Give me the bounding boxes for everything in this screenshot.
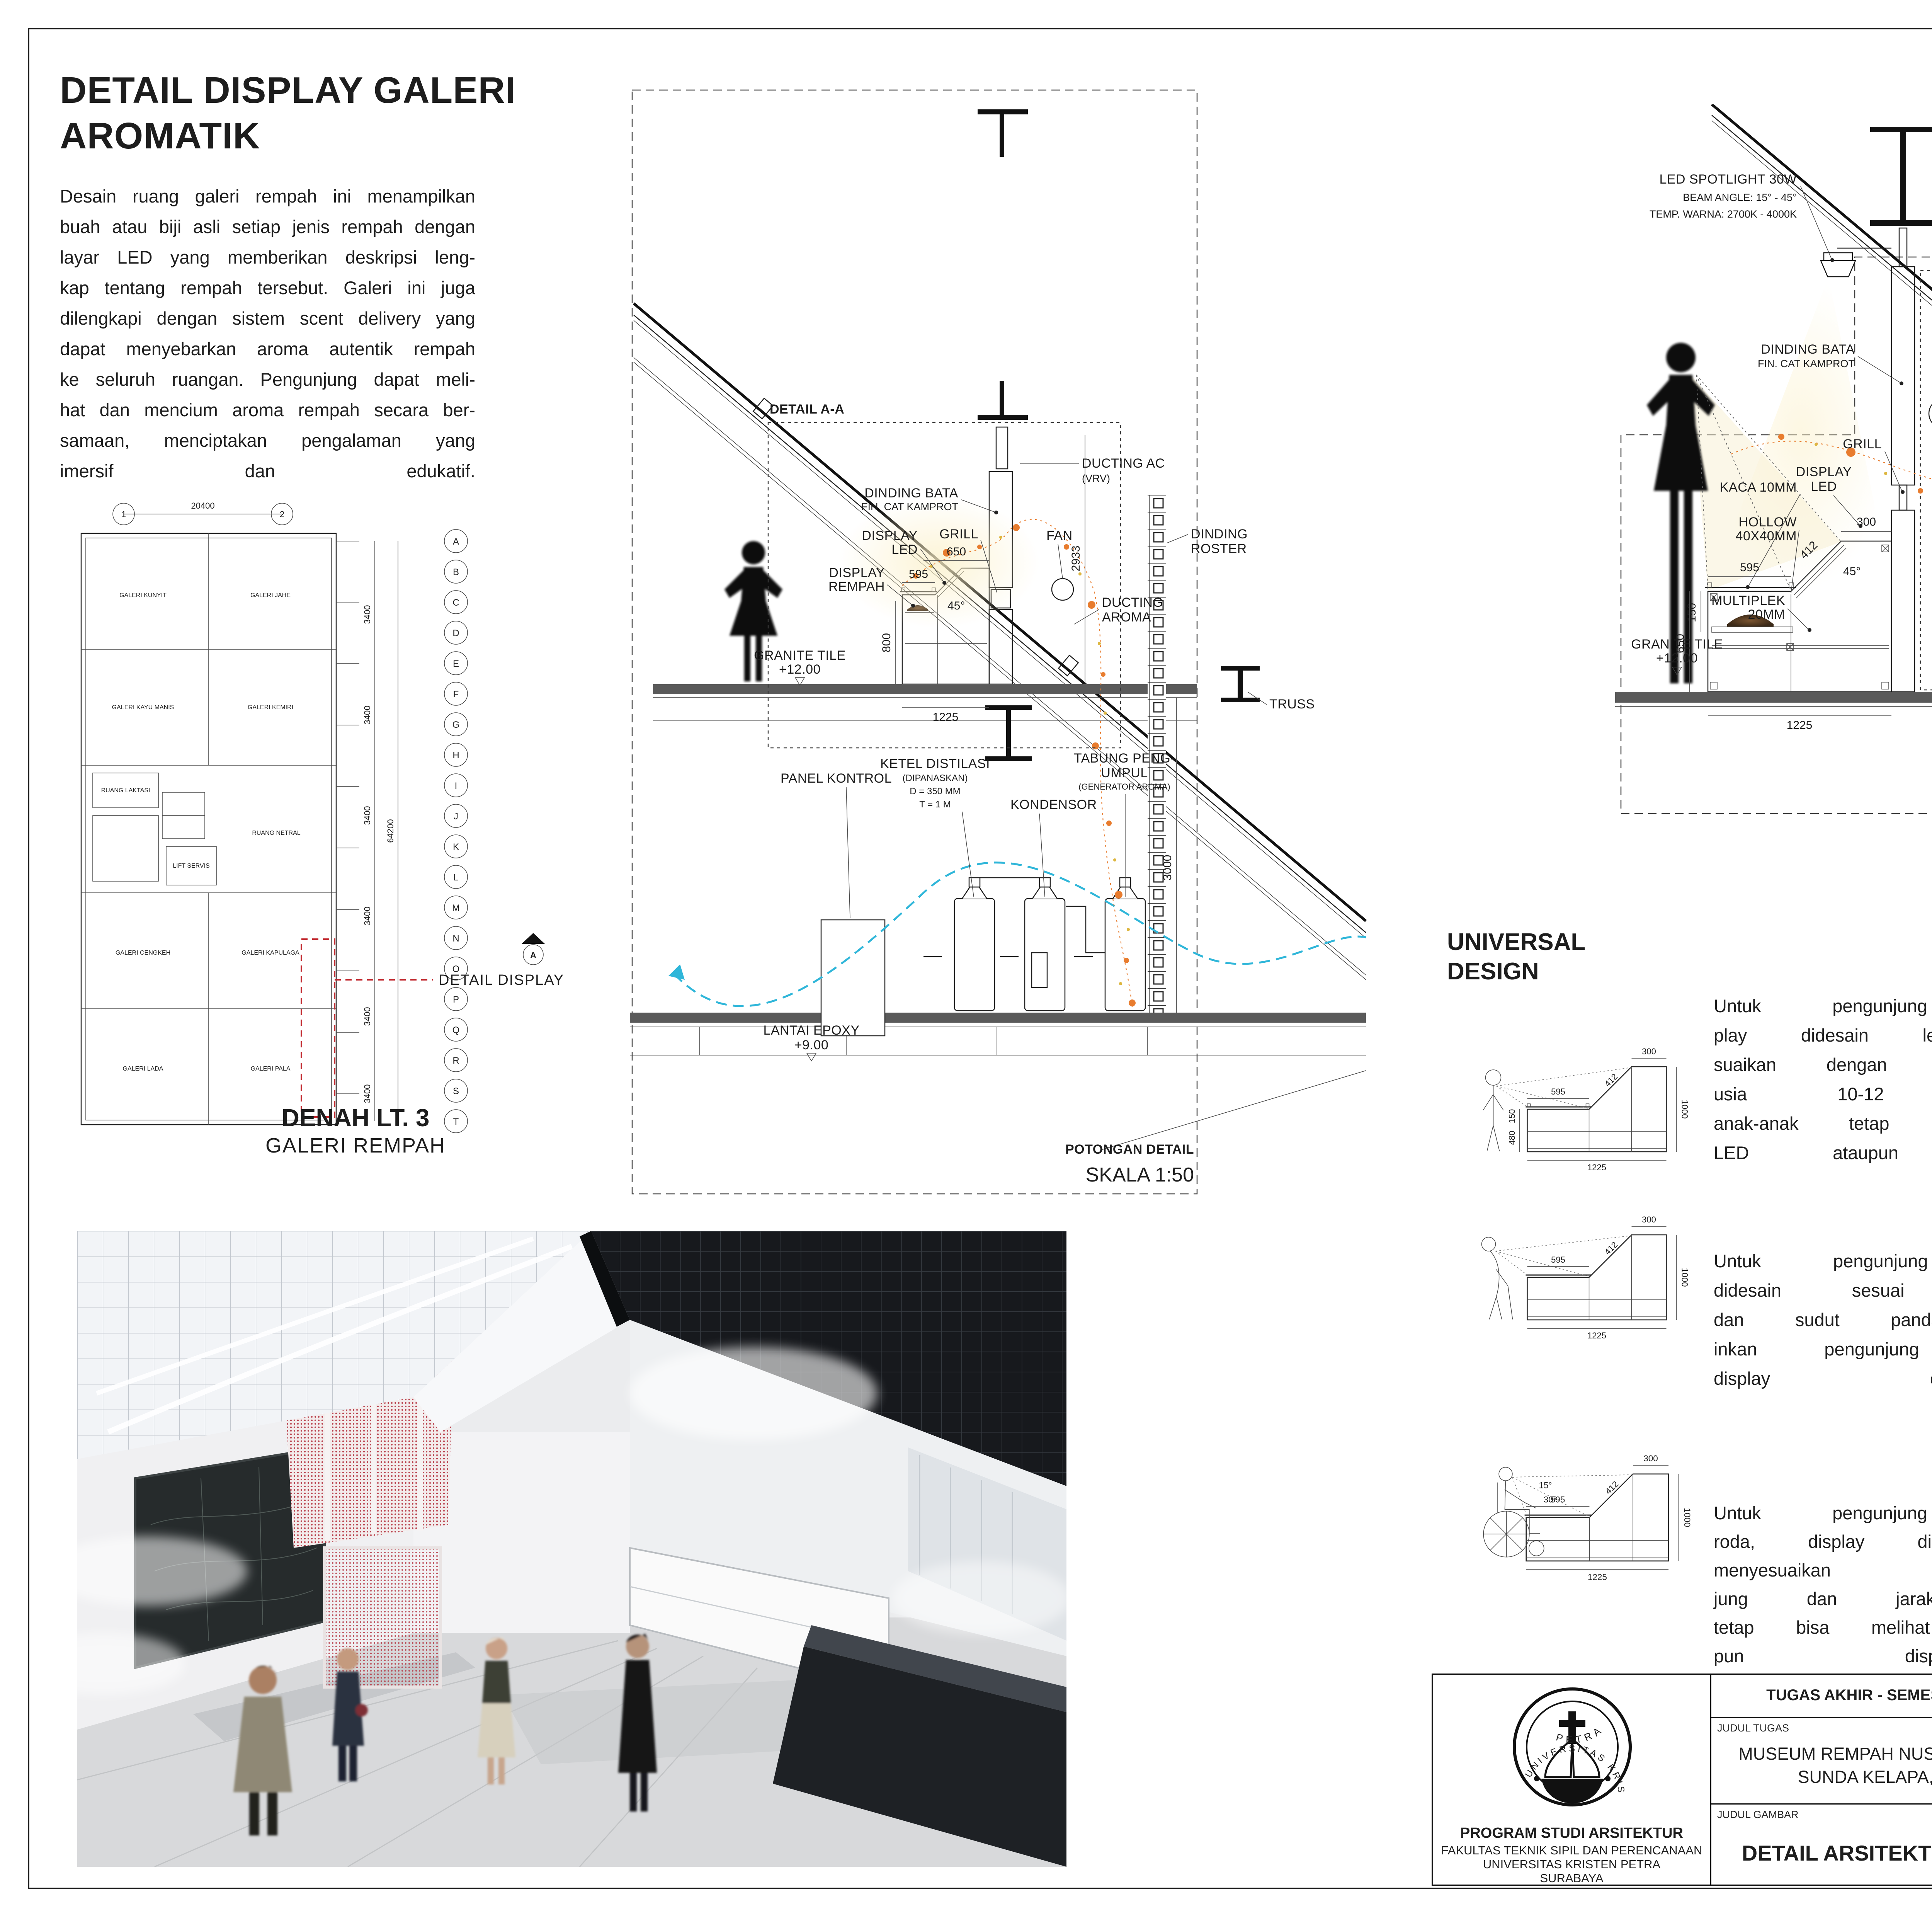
plan-room: LIFT SERVIS bbox=[173, 863, 209, 869]
svg-text:FAN: FAN bbox=[1046, 528, 1073, 543]
aroma-flow-line bbox=[674, 863, 1366, 1006]
potongan-drawing: DETAIL A-A 650 595 45° 800 1225 2933 300… bbox=[630, 87, 1368, 1208]
universal-paragraph-1: Untuk pengunjung anak-anak, dis- play di… bbox=[1714, 991, 1932, 1168]
plan-dim: 3400 bbox=[362, 907, 372, 926]
intro-paragraph: Desain ruang galeri rempah ini menampilk… bbox=[60, 181, 475, 486]
truss-symbol bbox=[1221, 666, 1260, 702]
p2-line: display dengan baik. bbox=[1714, 1364, 1932, 1393]
page-title-line2: AROMATIK bbox=[60, 113, 543, 159]
plan-room: GALERI KUNYIT bbox=[119, 592, 167, 599]
svg-text:T = 1 M: T = 1 M bbox=[919, 799, 951, 810]
dim: 1225 bbox=[1787, 719, 1813, 732]
plan-dim-overall: 64200 bbox=[386, 819, 395, 843]
plan-dim: 3400 bbox=[362, 1084, 372, 1103]
svg-text:REMPAH: REMPAH bbox=[828, 579, 885, 594]
floor-plan-drawing: 1 2 20400 GALERI KUNYIT GALERI JAHE GALE… bbox=[66, 499, 564, 1171]
intro-line: kap tentang rempah tersebut. Galeri ini … bbox=[60, 272, 475, 303]
svg-text:HOLLOW: HOLLOW bbox=[1739, 515, 1797, 529]
floor-plan: 1 2 20400 GALERI KUNYIT GALERI JAHE GALE… bbox=[66, 499, 564, 1171]
dim: 30° bbox=[1544, 1495, 1557, 1504]
grid-letter: I bbox=[455, 781, 457, 791]
section-marker-letter: A bbox=[530, 950, 536, 960]
potongan-detail: DETAIL A-A 650 595 45° 800 1225 2933 300… bbox=[630, 87, 1368, 1208]
petra-logo: UNIVERSITAS KRISTEN PETRA bbox=[1491, 1682, 1653, 1813]
svg-text:FIN. CAT KAMPROT: FIN. CAT KAMPROT bbox=[861, 501, 958, 512]
steel-column bbox=[978, 109, 1028, 469]
universal-fig-elderly: 595 300 412 1000 1225 bbox=[1447, 1204, 1700, 1343]
p3-line: roda, display didesain lebih pendek bbox=[1714, 1527, 1932, 1556]
dim: 480 bbox=[1507, 1131, 1517, 1145]
intro-line: layar LED yang memberikan deskripsi leng… bbox=[60, 242, 475, 272]
p2-line: dan sudut pandang yang memungk- bbox=[1714, 1305, 1932, 1335]
svg-text:FIN. CAT KAMPROT: FIN. CAT KAMPROT bbox=[1758, 358, 1855, 369]
svg-text:(DIPANASKAN): (DIPANASKAN) bbox=[903, 773, 968, 783]
svg-text:UMPUL: UMPUL bbox=[1101, 766, 1148, 780]
p1-line: play didesain lebih pendek menye- bbox=[1714, 1021, 1932, 1050]
grid-letter: R bbox=[452, 1056, 459, 1066]
svg-text:GRANITE TILE: GRANITE TILE bbox=[1631, 637, 1723, 652]
universitas: UNIVERSITAS KRISTEN PETRA bbox=[1433, 1857, 1710, 1871]
universal-fig-child: 595 300 412 150 480 1000 1225 bbox=[1447, 1036, 1700, 1175]
intro-line: imersif dan edukatif. bbox=[60, 456, 475, 486]
plan-room: GALERI PALA bbox=[251, 1066, 291, 1072]
p1-line: Untuk pengunjung anak-anak, dis- bbox=[1714, 991, 1932, 1021]
plan-room: RUANG LAKTASI bbox=[101, 787, 150, 794]
dim: 150 bbox=[1685, 603, 1698, 622]
svg-text:GRANITE TILE: GRANITE TILE bbox=[754, 648, 846, 663]
intro-line: hat dan mencium aroma rempah secara ber- bbox=[60, 395, 475, 425]
grid-letter: C bbox=[452, 598, 459, 608]
universal-h2: DESIGN bbox=[1447, 957, 1718, 986]
plan-title-text: DENAH LT. 3 bbox=[209, 1103, 502, 1132]
grid-letter: Q bbox=[452, 1025, 460, 1035]
interior-render bbox=[77, 1231, 1066, 1867]
grid-letter: B bbox=[453, 567, 459, 577]
svg-text:DISPLAY: DISPLAY bbox=[1796, 465, 1852, 479]
title-block: UNIVERSITAS KRISTEN PETRA PROGRAM STUDI … bbox=[1432, 1674, 1932, 1886]
intro-line: dapat menyebarkan aroma autentik rempah bbox=[60, 334, 475, 364]
dim: 1225 bbox=[1587, 1163, 1606, 1172]
universal-fig-wheelchair: 595 300 412 1000 1225 15° 30° bbox=[1447, 1411, 1700, 1581]
kota: SURABAYA bbox=[1433, 1871, 1710, 1885]
fan-symbol bbox=[1052, 579, 1073, 600]
plan-room: GALERI KAYU MANIS bbox=[112, 704, 174, 711]
p1-line: usia 10-12 tahun, sehingga bbox=[1714, 1079, 1932, 1109]
grid-letter: P bbox=[453, 994, 459, 1005]
judul-gambar: DETAIL ARSITEKTUR bbox=[1710, 1840, 1932, 1866]
svg-text:GRILL: GRILL bbox=[1843, 437, 1882, 451]
p1-line: anak-anak tetap bisa melihat display bbox=[1714, 1109, 1932, 1138]
svg-text:(GENERATOR AROMA): (GENERATOR AROMA) bbox=[1078, 782, 1170, 792]
p3-line: jung dan jarak pandangnya agar bbox=[1714, 1585, 1932, 1613]
svg-text:DISPLAY: DISPLAY bbox=[829, 565, 885, 580]
potongan-callout: DETAIL A-A bbox=[770, 402, 844, 417]
dim: 1000 bbox=[1680, 1268, 1690, 1287]
dim: 300 bbox=[1643, 1454, 1658, 1463]
fakultas: FAKULTAS TEKNIK SIPIL DAN PERENCANAAN bbox=[1433, 1844, 1710, 1857]
dim: 45° bbox=[947, 599, 965, 612]
svg-text:DUCTING AC: DUCTING AC bbox=[1082, 456, 1165, 471]
potongan-scale: SKALA 1:50 bbox=[1086, 1164, 1194, 1186]
svg-text:ROSTER: ROSTER bbox=[1191, 541, 1247, 556]
svg-text:LED: LED bbox=[891, 542, 918, 557]
svg-text:TEMP. WARNA: 2700K - 4000K: TEMP. WARNA: 2700K - 4000K bbox=[1650, 208, 1797, 220]
svg-text:LANTAI EPOXY: LANTAI EPOXY bbox=[763, 1023, 859, 1038]
wall-grill bbox=[1899, 485, 1907, 510]
intro-line: Desain ruang galeri rempah ini menampilk… bbox=[60, 181, 475, 211]
judul-tugas-2: SUNDA KELAPA, JAKARTA UTARA bbox=[1710, 1767, 1932, 1787]
detail-aa-drawing: 300 595 412 45° 150 650 1225 150 370 720… bbox=[1615, 104, 1932, 904]
grid-letter: H bbox=[452, 750, 459, 761]
universal-design-heading: UNIVERSAL DESIGN bbox=[1447, 928, 1718, 986]
p1-line: LED ataupun display rempah. bbox=[1714, 1138, 1932, 1168]
grid-letter: E bbox=[453, 659, 459, 669]
dim: 1000 bbox=[1682, 1508, 1692, 1527]
svg-text:MULTIPLEK: MULTIPLEK bbox=[1711, 593, 1785, 608]
dim: 45° bbox=[1843, 565, 1861, 578]
p3-line: pun display rempah. bbox=[1714, 1642, 1932, 1670]
p2-line: didesain sesuai standar ketinggian bbox=[1714, 1276, 1932, 1305]
svg-text:DUCTING: DUCTING bbox=[1102, 595, 1163, 610]
intro-line: ke seluruh ruangan. Pengunjung dapat mel… bbox=[60, 364, 475, 395]
wall-dinding-bata bbox=[1891, 267, 1915, 485]
dim: 300 bbox=[1642, 1047, 1656, 1056]
plan-grid-bubbles: A B C D E F G H I J K L M N O P Q R S T bbox=[444, 529, 468, 1133]
p3-line: menyesuaikan kebutuhan pengun- bbox=[1714, 1556, 1932, 1585]
svg-text:KETEL DISTILASI: KETEL DISTILASI bbox=[880, 756, 990, 771]
svg-text:LED: LED bbox=[1811, 479, 1837, 494]
plan-room: GALERI KEMIRI bbox=[248, 704, 293, 711]
svg-text:20MM: 20MM bbox=[1748, 607, 1785, 622]
page-title: DETAIL DISPLAY GALERI AROMATIK bbox=[60, 68, 543, 159]
dim: 650 bbox=[947, 545, 966, 558]
grid-letter: F bbox=[453, 689, 459, 700]
dim: 2933 bbox=[1070, 546, 1082, 572]
plan-room: GALERI KAPULAGA bbox=[241, 950, 299, 956]
grid-letter: D bbox=[452, 628, 459, 638]
svg-text:LED SPOTLIGHT 30W: LED SPOTLIGHT 30W bbox=[1659, 172, 1797, 187]
plan-grid-number: 1 bbox=[121, 509, 126, 519]
svg-text:+9.00: +9.00 bbox=[794, 1038, 829, 1052]
plan-dim: 3400 bbox=[362, 1007, 372, 1026]
dim: 595 bbox=[1551, 1087, 1565, 1096]
dim: 3000 bbox=[1161, 855, 1174, 881]
svg-text:GRILL: GRILL bbox=[939, 527, 978, 541]
plan-subtitle-text: GALERI REMPAH bbox=[209, 1132, 502, 1159]
svg-text:D = 350 MM: D = 350 MM bbox=[910, 786, 960, 797]
dim: 1225 bbox=[1587, 1331, 1606, 1340]
intro-line: samaan, menciptakan pengalaman yang bbox=[60, 425, 475, 456]
dim: 1225 bbox=[1588, 1572, 1607, 1581]
aroma-equipment bbox=[821, 878, 1145, 1036]
grid-letter: S bbox=[453, 1086, 459, 1096]
dim: 1225 bbox=[933, 711, 959, 724]
universal-paragraph-3: Untuk pengunjung pengguna kursi roda, di… bbox=[1714, 1499, 1932, 1670]
dim: 150 bbox=[1507, 1109, 1517, 1124]
fan-symbol bbox=[1929, 399, 1932, 428]
svg-text:DINDING BATA: DINDING BATA bbox=[1761, 342, 1855, 357]
plan-dim: 3400 bbox=[362, 706, 372, 725]
plan-grid-number: 2 bbox=[280, 509, 284, 519]
p2-line: Untuk pengunjung normal, display bbox=[1714, 1246, 1932, 1276]
intro-line: buah atau biji asli setiap jenis rempah … bbox=[60, 211, 475, 242]
page-title-line1: DETAIL DISPLAY GALERI bbox=[60, 68, 543, 113]
universal-h1: UNIVERSAL bbox=[1447, 928, 1718, 957]
p3-line: tetap bisa melihat display LED atau- bbox=[1714, 1613, 1932, 1642]
svg-text:40X40MM: 40X40MM bbox=[1736, 529, 1797, 543]
section-marker: A bbox=[522, 933, 545, 965]
dim: 1000 bbox=[1680, 1100, 1690, 1119]
p3-line: Untuk pengunjung pengguna kursi bbox=[1714, 1499, 1932, 1527]
presentation-board: DETAIL DISPLAY GALERI AROMATIK Desain ru… bbox=[0, 0, 1932, 1917]
grid-letter: L bbox=[453, 872, 458, 883]
svg-text:BEAM ANGLE: 15° - 45°: BEAM ANGLE: 15° - 45° bbox=[1683, 192, 1797, 203]
dim: 595 bbox=[1551, 1255, 1565, 1265]
dim: 595 bbox=[909, 568, 928, 581]
plan-room: GALERI JAHE bbox=[250, 592, 291, 599]
intro-line: dilengkapi dengan sistem scent delivery … bbox=[60, 303, 475, 334]
grid-letter: J bbox=[454, 811, 458, 822]
svg-text:+12.00: +12.00 bbox=[779, 662, 821, 677]
judul-gambar-label: JUDUL GAMBAR bbox=[1717, 1809, 1799, 1821]
floor-slab bbox=[653, 684, 1197, 694]
svg-text:KACA 10MM: KACA 10MM bbox=[1720, 480, 1797, 495]
grid-letter: A bbox=[453, 536, 459, 547]
p1-line: suaikan dengan tinggi rata-rata anak bbox=[1714, 1050, 1932, 1079]
svg-text:KONDENSOR: KONDENSOR bbox=[1010, 797, 1097, 812]
dim: 300 bbox=[1642, 1215, 1656, 1224]
grid-letter: G bbox=[452, 720, 460, 730]
plan-dim: 3400 bbox=[362, 605, 372, 624]
plan-title: DENAH LT. 3 GALERI REMPAH bbox=[209, 1103, 502, 1159]
plan-top-dim: 20400 bbox=[191, 501, 214, 511]
detail-aa: 300 595 412 45° 150 650 1225 150 370 720… bbox=[1615, 104, 1932, 904]
grid-letter: M bbox=[452, 903, 460, 913]
judul-tugas-label: JUDUL TUGAS bbox=[1717, 1722, 1789, 1734]
svg-text:DINDING: DINDING bbox=[1191, 527, 1248, 541]
detail-display-callout: DETAIL DISPLAY bbox=[439, 972, 564, 988]
dim: 800 bbox=[880, 633, 893, 652]
program-studi: PROGRAM STUDI ARSITEKTUR bbox=[1433, 1825, 1710, 1842]
detail-display-zone bbox=[301, 939, 335, 1117]
plan-room: RUANG NETRAL bbox=[252, 830, 300, 836]
svg-text:(VRV): (VRV) bbox=[1082, 473, 1110, 484]
plan-columns bbox=[336, 541, 359, 1094]
plan-room: GALERI LADA bbox=[123, 1066, 163, 1072]
universal-paragraph-2: Untuk pengunjung normal, display didesai… bbox=[1714, 1246, 1932, 1393]
svg-text:TABUNG PENG-: TABUNG PENG- bbox=[1074, 751, 1175, 766]
tb-header: TUGAS AKHIR - SEMESTER GENAP 2023/2024 bbox=[1710, 1687, 1932, 1704]
dim: 15° bbox=[1539, 1481, 1552, 1490]
grid-letter: N bbox=[452, 933, 459, 944]
svg-text:TRUSS: TRUSS bbox=[1269, 697, 1315, 712]
floor-slab bbox=[1615, 692, 1932, 703]
grid-letter: K bbox=[453, 842, 459, 852]
judul-tugas-1: MUSEUM REMPAH NUSANTARA DI PELABUHAN bbox=[1710, 1744, 1932, 1764]
svg-text:DISPLAY: DISPLAY bbox=[862, 528, 918, 543]
svg-text:+12.00: +12.00 bbox=[1656, 651, 1698, 666]
svg-text:PANEL KONTROL: PANEL KONTROL bbox=[781, 771, 892, 786]
svg-text:DINDING BATA: DINDING BATA bbox=[864, 486, 958, 501]
svg-text:AROMA: AROMA bbox=[1102, 610, 1151, 625]
plan-dim: 3400 bbox=[362, 806, 372, 825]
plan-room: GALERI CENGKEH bbox=[116, 950, 170, 956]
potongan-title: POTONGAN DETAIL bbox=[1065, 1142, 1194, 1157]
p2-line: inkan pengunjung dapat mengamati bbox=[1714, 1335, 1932, 1364]
